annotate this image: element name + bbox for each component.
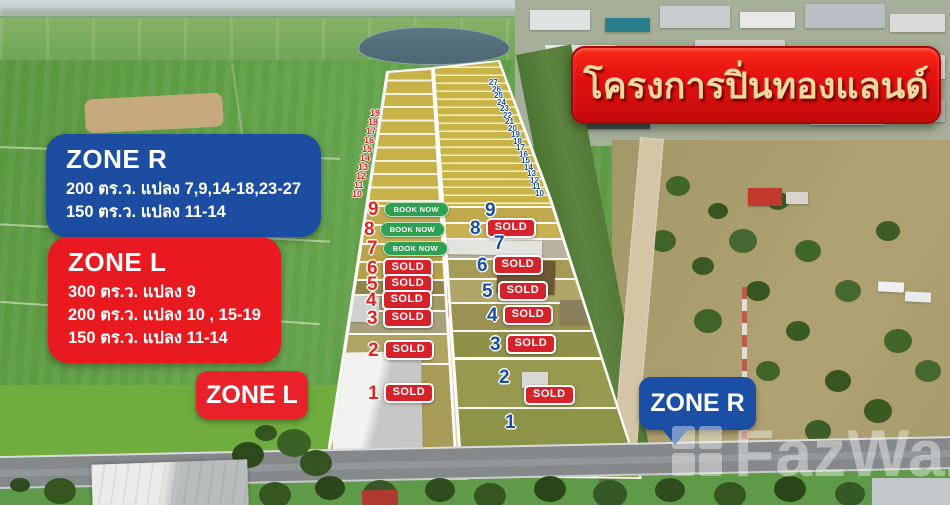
plot-row: 9 BOOK NOW bbox=[368, 200, 449, 219]
plot-row: 5 SOLD bbox=[482, 281, 548, 301]
plot-row: 6 SOLD bbox=[477, 255, 543, 275]
factory-building bbox=[805, 4, 885, 28]
strip-plot-number: 10 bbox=[535, 190, 544, 198]
factory-building bbox=[890, 14, 945, 32]
plot-number: 1 bbox=[368, 384, 379, 403]
zone-l-info-line: 200 ตร.ว. แปลง 10 , 15-19 bbox=[68, 304, 261, 327]
factory-building bbox=[605, 18, 650, 32]
watermark: FazWaz bbox=[672, 420, 950, 486]
aerial-photo-background: 19 18 17 16 15 14 13 12 11 10 27 26 25 2… bbox=[0, 0, 950, 505]
warehouse-roof-bottom-left bbox=[91, 459, 249, 505]
plot-row: 7 BOOK NOW bbox=[367, 239, 448, 258]
sold-badge: SOLD bbox=[503, 305, 554, 325]
project-title-banner: โครงการปิ่นทองแลนด์ bbox=[571, 46, 941, 124]
zone-r-info-line: 200 ตร.ว. แปลง 7,9,14-18,23-27 bbox=[66, 178, 301, 201]
plot-number: 4 bbox=[366, 291, 377, 310]
white-truck bbox=[878, 281, 904, 292]
plot-number: 3 bbox=[490, 335, 501, 354]
zone-r-info-line: 150 ตร.ว. แปลง 11-14 bbox=[66, 201, 301, 224]
warehouse-roof bbox=[331, 351, 423, 457]
roadside-trees bbox=[10, 478, 30, 492]
zone-l-info-box: ZONE L 300 ตร.ว. แปลง 9 200 ตร.ว. แปลง 1… bbox=[48, 237, 281, 363]
zone-l-info-line: 150 ตร.ว. แปลง 11-14 bbox=[68, 327, 261, 350]
sold-badge: SOLD bbox=[384, 383, 435, 403]
plot-number: 9 bbox=[368, 200, 379, 219]
white-truck bbox=[905, 291, 931, 302]
pond bbox=[358, 27, 510, 65]
zone-l-marker: ZONE L bbox=[196, 371, 308, 419]
factory-building bbox=[530, 10, 590, 30]
book-now-badge: BOOK NOW bbox=[384, 202, 449, 218]
sold-badge: SOLD bbox=[506, 334, 557, 354]
plot-number: 1 bbox=[505, 413, 516, 432]
factory-building bbox=[740, 12, 795, 28]
book-now-badge: BOOK NOW bbox=[380, 222, 445, 238]
plot-row: 7 bbox=[494, 234, 505, 253]
plot-number: 6 bbox=[477, 256, 488, 275]
plot-number: 7 bbox=[494, 234, 505, 253]
tree-cluster bbox=[255, 425, 277, 441]
plot-number: 7 bbox=[367, 239, 378, 258]
plot-number: 8 bbox=[470, 219, 481, 238]
sold-badge: SOLD bbox=[384, 340, 435, 360]
zone-l-info-line: 300 ตร.ว. แปลง 9 bbox=[68, 281, 261, 304]
sold-badge: SOLD bbox=[383, 308, 434, 328]
plot-number: 2 bbox=[368, 341, 379, 360]
red-roof-building bbox=[748, 188, 782, 206]
watermark-text: FazWaz bbox=[734, 420, 950, 486]
strip-plot-number: 10 bbox=[352, 190, 362, 199]
plot-number: 3 bbox=[367, 309, 378, 328]
zone-l-info-title: ZONE L bbox=[68, 247, 261, 278]
dirt-patch bbox=[84, 92, 224, 133]
sold-badge: SOLD bbox=[493, 255, 544, 275]
plot-number: 2 bbox=[499, 368, 510, 387]
book-now-badge: BOOK NOW bbox=[383, 241, 448, 257]
sold-badge: SOLD bbox=[382, 290, 433, 310]
red-roof-house bbox=[362, 489, 399, 505]
zone-r-info-title: ZONE R bbox=[66, 144, 301, 175]
fazwaz-logo-icon bbox=[672, 426, 726, 480]
sold-badge: SOLD bbox=[498, 281, 549, 301]
sold-badge: SOLD bbox=[524, 385, 575, 405]
small-building bbox=[786, 192, 808, 204]
plot-row: 3 SOLD bbox=[490, 334, 556, 354]
plot-row: 4 SOLD bbox=[366, 290, 432, 310]
plot-row: 3 SOLD bbox=[367, 308, 433, 328]
project-title: โครงการปิ่นทองแลนด์ bbox=[583, 57, 928, 114]
factory-building bbox=[660, 6, 730, 28]
plot-number: 4 bbox=[487, 306, 498, 325]
zone-r-info-box: ZONE R 200 ตร.ว. แปลง 7,9,14-18,23-27 15… bbox=[46, 134, 321, 237]
plot-number: 8 bbox=[364, 220, 375, 239]
plot-row: 4 SOLD bbox=[487, 305, 553, 325]
plot-number: 5 bbox=[482, 282, 493, 301]
plot-row: 8 BOOK NOW bbox=[364, 220, 445, 239]
plot-row: 2 SOLD bbox=[368, 340, 434, 360]
plot-row: 1 SOLD bbox=[368, 383, 434, 403]
